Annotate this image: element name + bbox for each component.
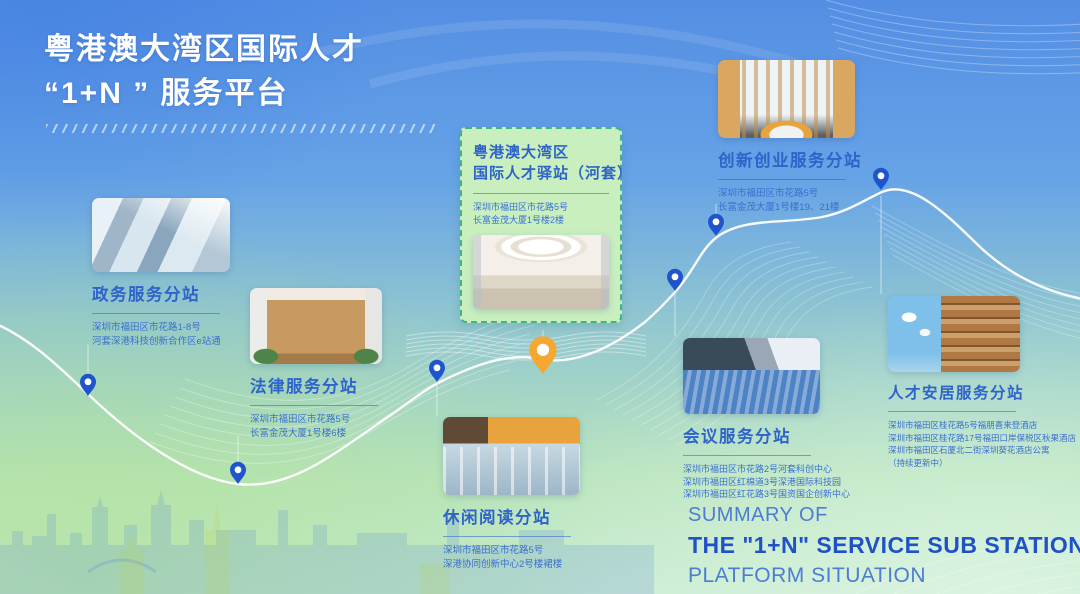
photo-talent-post-lobby	[473, 235, 609, 309]
photo-government-service	[92, 198, 230, 272]
station-address-line: 长富金茂大厦1号楼19、21楼	[718, 201, 858, 215]
divider	[718, 179, 846, 180]
station-address-line: 长富金茂大厦1号楼6楼	[250, 427, 390, 441]
station-address-line: 深圳市福田区市花路5号	[473, 201, 609, 214]
station-card-government: 政务服务分站 深圳市福田区市花路1-8号 河套深港科技创新合作区e站通	[92, 198, 232, 349]
station-address: 深圳市福田区市花路5号 长富金茂大厦1号楼6楼	[250, 413, 390, 441]
station-address-line: 深圳市福田区桂花路17号福田口岸保税区秋果酒店	[888, 432, 1078, 445]
station-card-reading: 休闲阅读分站 深圳市福田区市花路5号 深港协同创新中心2号楼裙楼	[443, 417, 593, 572]
station-card-legal: 法律服务分站 深圳市福田区市花路5号 长富金茂大厦1号楼6楼	[250, 288, 390, 441]
photo-legal-service	[250, 288, 382, 364]
summary-footer: SUMMARY OF THE "1+N" SERVICE SUB STATION…	[688, 504, 1080, 588]
station-title: 政务服务分站	[92, 281, 232, 305]
divider	[473, 193, 609, 194]
divider	[250, 405, 378, 406]
station-address: 深圳市福田区市花路5号 长富金茂大厦1号楼19、21楼	[718, 187, 858, 215]
divider	[92, 313, 220, 314]
contour-lines-top-right	[826, 0, 1080, 74]
title-hatch-decoration	[46, 124, 438, 133]
station-card-housing: 人才安居服务分站 深圳市福田区桂花路5号福朋喜来登酒店 深圳市福田区桂花路17号…	[888, 296, 1078, 469]
station-title: 人才安居服务分站	[888, 381, 1078, 403]
station-address: 深圳市福田区桂花路5号福朋喜来登酒店 深圳市福田区桂花路17号福田口岸保税区秋果…	[888, 419, 1078, 469]
station-card-talent-post-highlight: 粤港澳大湾区 国际人才驿站（河套） 深圳市福田区市花路5号 长富金茂大厦1号楼2…	[460, 127, 622, 323]
photo-conference-service	[683, 338, 820, 414]
divider	[683, 455, 811, 456]
station-address-line: 深圳市福田区石厦北二街深圳葵花酒店公寓	[888, 444, 1078, 457]
station-title: 创新创业服务分站	[718, 147, 858, 171]
station-address-line: 深圳市福田区市花路2号河套科创中心	[683, 463, 893, 476]
divider	[443, 536, 571, 537]
location-pin-icon-legal	[230, 462, 246, 484]
summary-line-1: SUMMARY OF	[688, 504, 1080, 527]
station-title-line-1: 粤港澳大湾区	[473, 142, 609, 163]
page-title-line-2: “1+N ” 服务平台	[44, 72, 364, 116]
station-address-line: 河套深港科技创新合作区e站通	[92, 335, 232, 349]
station-address-line: 深圳市福田区红棉道3号深港国际科技园	[683, 476, 893, 489]
station-address-line: （持续更新中）	[888, 457, 1078, 470]
station-address-line: 深圳市福田区桂花路5号福朋喜来登酒店	[888, 419, 1078, 432]
station-address: 深圳市福田区市花路5号 深港协同创新中心2号楼裙楼	[443, 544, 593, 572]
station-address-line: 深港协同创新中心2号楼裙楼	[443, 558, 593, 572]
station-address: 深圳市福田区市花路5号 长富金茂大厦1号楼2楼	[473, 201, 609, 226]
station-address-line: 深圳市福田区市花路5号	[718, 187, 858, 201]
station-title: 休闲阅读分站	[443, 504, 593, 528]
summary-line-2: THE "1+N" SERVICE SUB STATION	[688, 532, 1080, 559]
station-card-innovation: 创新创业服务分站 深圳市福田区市花路5号 长富金茂大厦1号楼19、21楼	[718, 60, 858, 215]
station-address: 深圳市福田区市花路2号河套科创中心 深圳市福田区红棉道3号深港国际科技园 深圳市…	[683, 463, 893, 501]
poster-canvas: 粤港澳大湾区国际人才 “1+N ” 服务平台 政务服务分站 深圳市福田区市花路1…	[0, 0, 1080, 594]
location-pin-icon-housing	[873, 168, 889, 190]
summary-line-3: PLATFORM SITUATION	[688, 564, 1080, 588]
divider	[888, 411, 1016, 412]
station-card-conference: 会议服务分站 深圳市福田区市花路2号河套科创中心 深圳市福田区红棉道3号深港国际…	[683, 338, 893, 501]
station-address-line: 长富金茂大厦1号楼2楼	[473, 214, 609, 227]
station-address-line: 深圳市福田区市花路1-8号	[92, 321, 232, 335]
station-title-line-2: 国际人才驿站（河套）	[473, 163, 609, 184]
photo-innovation-service	[718, 60, 855, 138]
location-pin-icon-talent-post	[529, 336, 556, 374]
page-title-line-1: 粤港澳大湾区国际人才	[44, 28, 364, 72]
location-pin-icon-government	[80, 374, 96, 396]
photo-housing-service	[888, 296, 1020, 372]
location-pin-icon-conference	[667, 269, 683, 291]
station-address: 深圳市福田区市花路1-8号 河套深港科技创新合作区e站通	[92, 321, 232, 349]
station-address-line: 深圳市福田区市花路5号	[250, 413, 390, 427]
station-address-line: 深圳市福田区市花路5号	[443, 544, 593, 558]
page-title: 粤港澳大湾区国际人才 “1+N ” 服务平台	[44, 28, 364, 116]
photo-reading-service	[443, 417, 580, 495]
station-title: 法律服务分站	[250, 373, 390, 397]
station-address-line: 深圳市福田区红花路3号国资国企创新中心	[683, 488, 893, 501]
station-title: 会议服务分站	[683, 423, 893, 447]
